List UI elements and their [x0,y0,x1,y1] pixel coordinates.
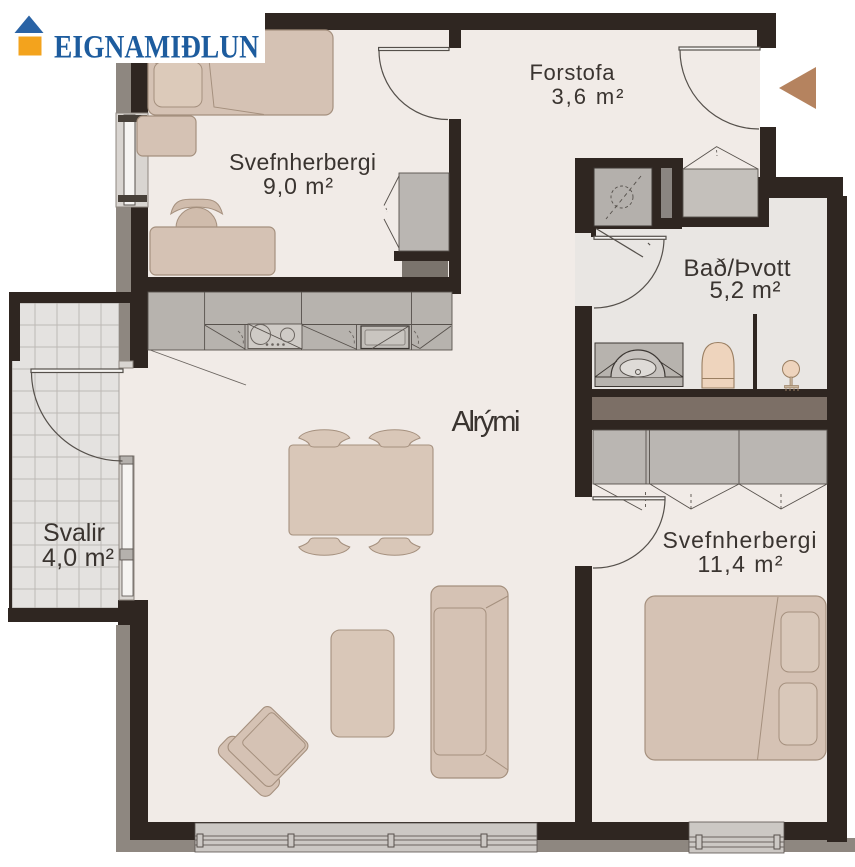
svg-text:5,2 m²: 5,2 m² [710,277,781,304]
svg-text:EIGNAMIÐLUN: EIGNAMIÐLUN [54,30,259,66]
svg-text:9,0 m²: 9,0 m² [263,173,333,199]
svg-text:11,4 m²: 11,4 m² [698,551,783,577]
svg-text:Svalir: Svalir [43,519,105,547]
svg-text:Forstofa: Forstofa [530,60,616,85]
svg-text:Alrými: Alrými [452,406,521,438]
svg-text:Svefnherbergi: Svefnherbergi [229,149,376,175]
svg-text:Svefnherbergi: Svefnherbergi [663,527,817,553]
svg-text:3,6 m²: 3,6 m² [552,84,624,109]
svg-text:4,0 m²: 4,0 m² [42,544,114,572]
